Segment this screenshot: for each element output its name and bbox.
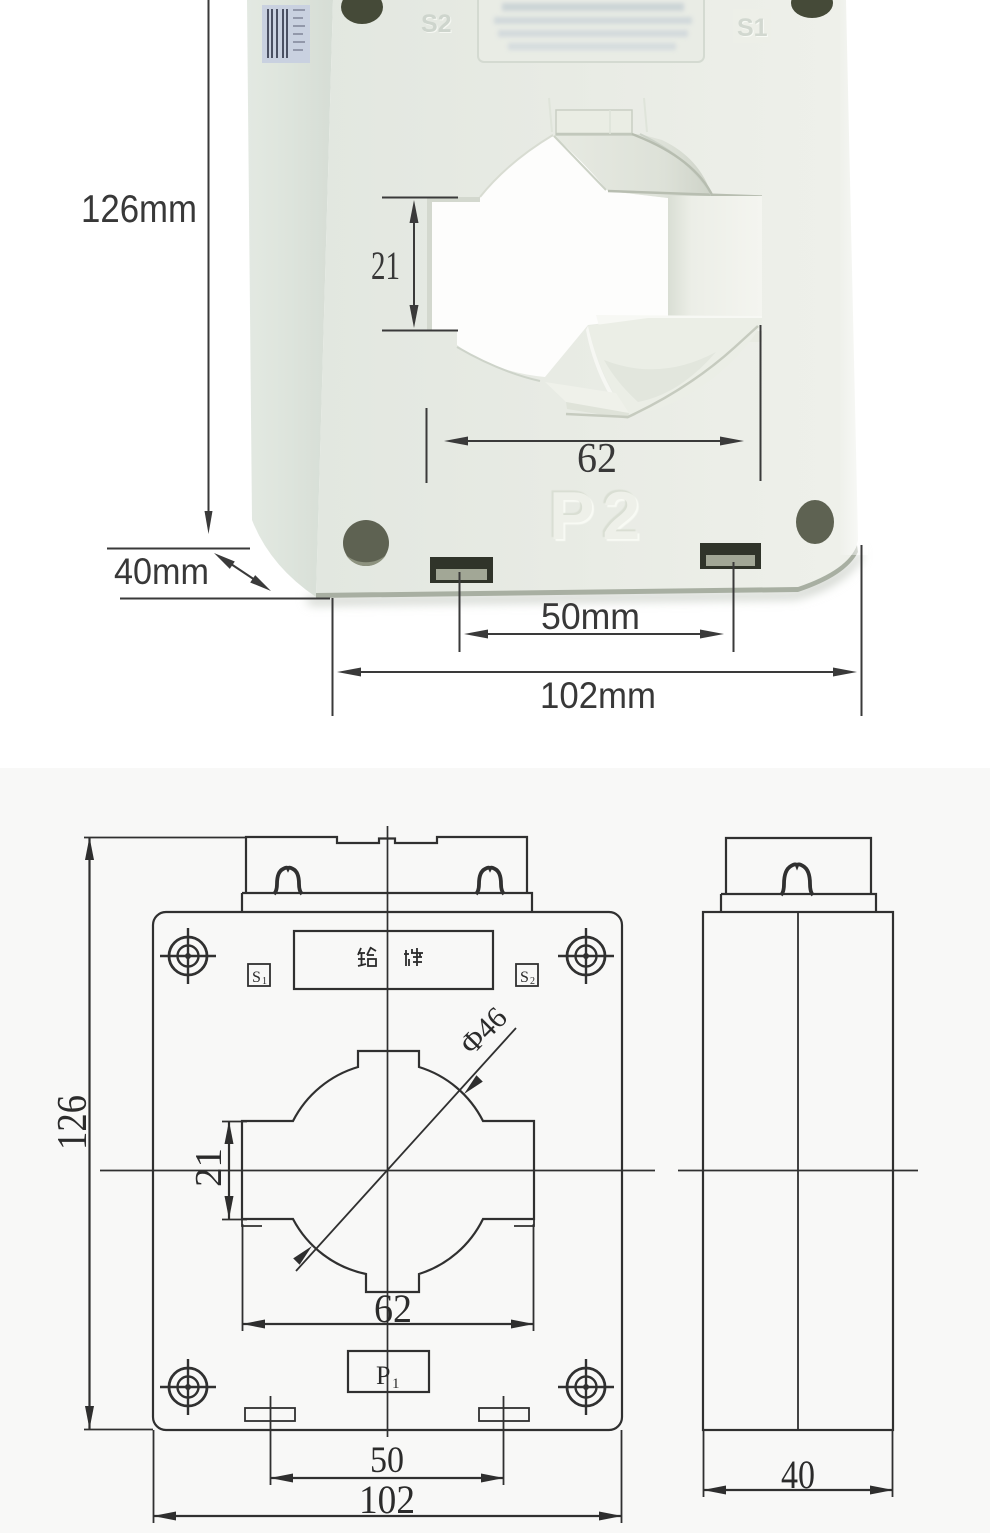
svg-text:126mm: 126mm bbox=[81, 188, 197, 231]
svg-text:S2: S2 bbox=[421, 10, 452, 38]
svg-text:40mm: 40mm bbox=[114, 551, 209, 592]
svg-text:102mm: 102mm bbox=[540, 675, 656, 716]
svg-text:S: S bbox=[252, 969, 261, 986]
svg-text:2: 2 bbox=[530, 976, 535, 987]
svg-text:62: 62 bbox=[374, 1286, 412, 1331]
svg-text:21: 21 bbox=[371, 243, 400, 288]
svg-text:P2: P2 bbox=[549, 478, 648, 554]
svg-text:21: 21 bbox=[188, 1148, 230, 1187]
svg-text:S1: S1 bbox=[737, 14, 768, 42]
svg-text:1: 1 bbox=[262, 976, 267, 987]
svg-text:P: P bbox=[376, 1361, 390, 1390]
svg-text:1: 1 bbox=[392, 1376, 400, 1392]
svg-text:40: 40 bbox=[781, 1452, 815, 1497]
svg-text:102: 102 bbox=[359, 1477, 415, 1522]
svg-text:50: 50 bbox=[370, 1440, 404, 1481]
svg-text:126: 126 bbox=[50, 1095, 96, 1150]
svg-text:62: 62 bbox=[577, 436, 617, 482]
svg-text:50mm: 50mm bbox=[541, 596, 640, 637]
svg-text:S: S bbox=[520, 969, 529, 986]
